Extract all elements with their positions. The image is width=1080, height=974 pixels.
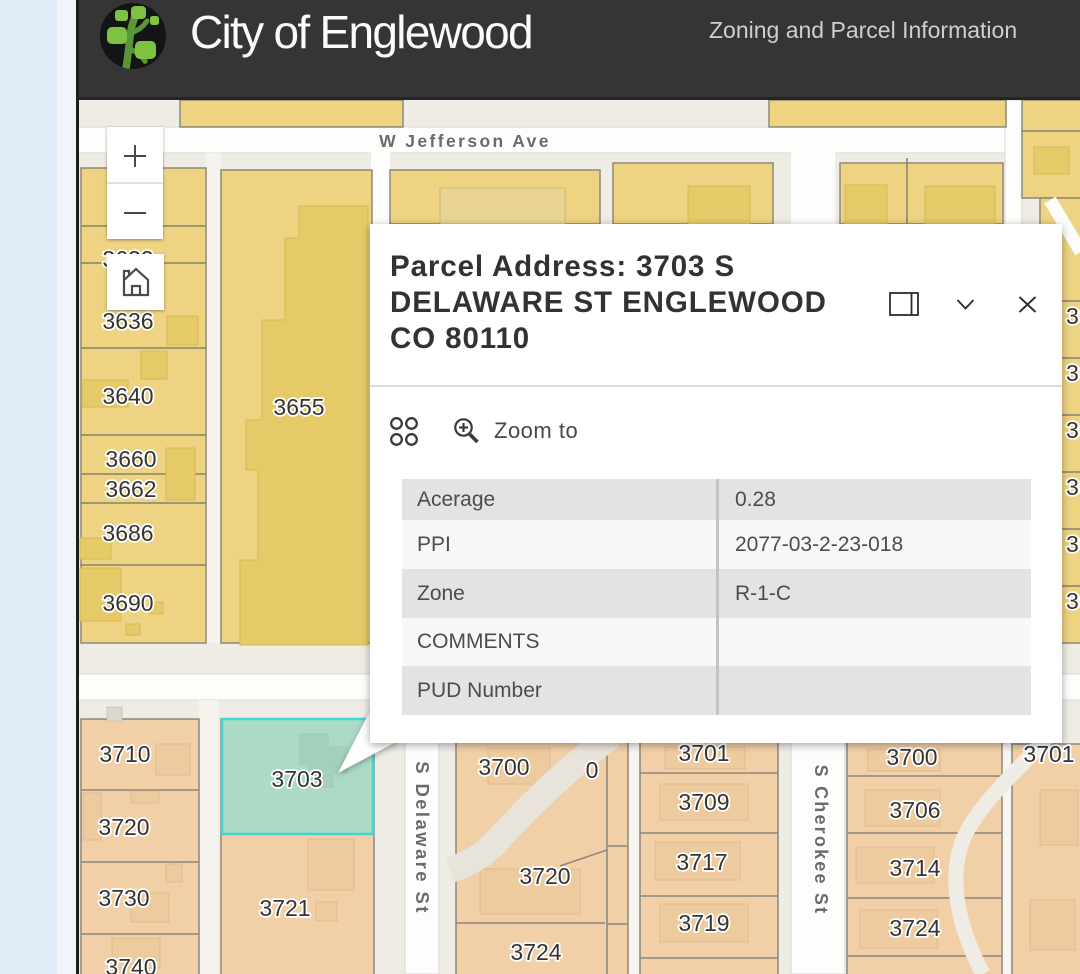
svg-text:36: 36 — [1066, 588, 1080, 614]
svg-text:S Delaware St: S Delaware St — [412, 761, 433, 915]
svg-text:36: 36 — [1066, 474, 1080, 500]
svg-text:3709: 3709 — [678, 789, 729, 815]
svg-text:3686: 3686 — [102, 520, 153, 546]
svg-text:3640: 3640 — [102, 383, 153, 409]
svg-text:3703: 3703 — [271, 766, 322, 792]
svg-text:3660: 3660 — [105, 446, 156, 472]
svg-text:3655: 3655 — [273, 394, 324, 420]
svg-text:3720: 3720 — [519, 863, 570, 889]
svg-text:3700: 3700 — [886, 744, 937, 770]
svg-text:3720: 3720 — [98, 814, 149, 840]
svg-text:0: 0 — [586, 757, 599, 783]
svg-text:3724: 3724 — [889, 915, 940, 941]
svg-text:36: 36 — [1066, 360, 1080, 386]
svg-text:3706: 3706 — [889, 797, 940, 823]
svg-text:3700: 3700 — [478, 754, 529, 780]
svg-text:36: 36 — [1066, 303, 1080, 329]
svg-text:3717: 3717 — [676, 849, 727, 875]
svg-text:3690: 3690 — [102, 590, 153, 616]
svg-text:3721: 3721 — [259, 895, 310, 921]
svg-text:3730: 3730 — [98, 885, 149, 911]
svg-text:36: 36 — [1066, 531, 1080, 557]
svg-text:3719: 3719 — [678, 910, 729, 936]
svg-text:3701: 3701 — [1023, 741, 1074, 767]
svg-text:S Cherokee St: S Cherokee St — [811, 765, 831, 916]
svg-text:W Jefferson Ave: W Jefferson Ave — [379, 131, 551, 151]
svg-text:3701: 3701 — [678, 740, 729, 766]
svg-text:3710: 3710 — [99, 741, 150, 767]
svg-text:3724: 3724 — [510, 939, 561, 965]
svg-text:3714: 3714 — [889, 855, 940, 881]
svg-text:3636: 3636 — [102, 308, 153, 334]
svg-text:3662: 3662 — [105, 476, 156, 502]
svg-text:3740: 3740 — [105, 954, 156, 974]
svg-text:36: 36 — [1066, 417, 1080, 443]
